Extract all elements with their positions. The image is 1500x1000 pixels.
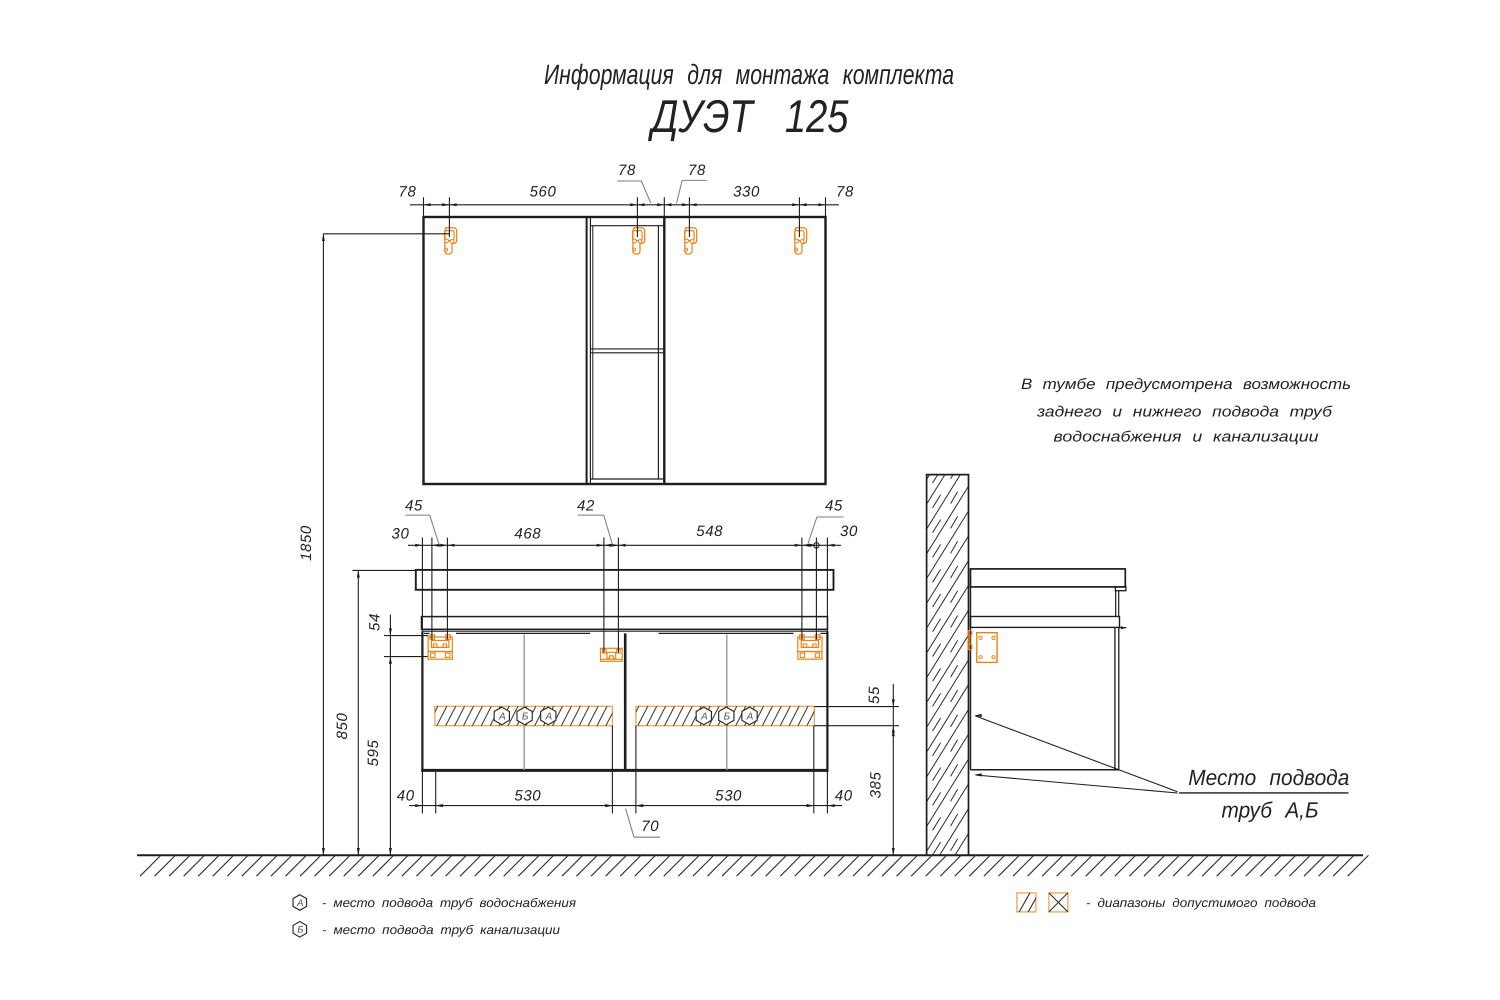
svg-text:Место подвода: Место подвода — [1188, 765, 1349, 790]
svg-text:Б: Б — [522, 712, 529, 723]
svg-text:54: 54 — [366, 613, 383, 631]
svg-text:Б: Б — [297, 925, 303, 936]
svg-text:- диапазоны допустимого подво: - диапазоны допустимого подвода — [1086, 896, 1316, 910]
svg-text:70: 70 — [641, 818, 659, 835]
svg-text:330: 330 — [733, 184, 760, 201]
svg-text:468: 468 — [514, 526, 541, 543]
svg-text:заднего и нижнего подвода труб: заднего и нижнего подвода труб — [1036, 404, 1333, 421]
svg-text:40: 40 — [835, 788, 853, 805]
svg-text:Информация для монтажа комплек: Информация для монтажа комплекта — [544, 59, 954, 90]
svg-text:В тумбе предусмотрена возможно: В тумбе предусмотрена возможность — [1021, 376, 1351, 393]
svg-text:30: 30 — [840, 523, 858, 540]
svg-text:595: 595 — [365, 740, 382, 767]
svg-text:42: 42 — [577, 498, 595, 515]
svg-text:385: 385 — [868, 772, 885, 799]
svg-text:530: 530 — [514, 788, 541, 805]
svg-text:А: А — [700, 712, 708, 723]
svg-text:1850: 1850 — [298, 525, 315, 561]
svg-text:850: 850 — [334, 713, 351, 740]
svg-text:548: 548 — [696, 523, 723, 540]
svg-text:труб А,Б: труб А,Б — [1222, 798, 1319, 823]
svg-text:А: А — [296, 898, 303, 909]
svg-text:Б: Б — [724, 712, 731, 723]
svg-text:45: 45 — [405, 498, 423, 515]
svg-text:45: 45 — [825, 498, 843, 515]
svg-text:78: 78 — [399, 184, 417, 201]
svg-text:55: 55 — [866, 686, 883, 704]
svg-text:А: А — [498, 712, 506, 723]
svg-text:78: 78 — [688, 162, 706, 179]
svg-text:- место подвода труб водоснаб: - место подвода труб водоснабжения — [322, 896, 576, 910]
svg-text:водоснабжения и канализации: водоснабжения и канализации — [1054, 428, 1320, 445]
svg-text:ДУЭТ 125: ДУЭТ 125 — [647, 90, 848, 142]
svg-text:78: 78 — [836, 184, 854, 201]
svg-text:А: А — [544, 712, 552, 723]
svg-text:78: 78 — [618, 162, 636, 179]
svg-text:- место подвода труб канализа: - место подвода труб канализации — [322, 923, 560, 937]
svg-text:560: 560 — [530, 184, 557, 201]
svg-text:530: 530 — [715, 788, 742, 805]
svg-text:40: 40 — [397, 788, 415, 805]
svg-text:30: 30 — [392, 526, 410, 543]
svg-text:А: А — [746, 712, 754, 723]
